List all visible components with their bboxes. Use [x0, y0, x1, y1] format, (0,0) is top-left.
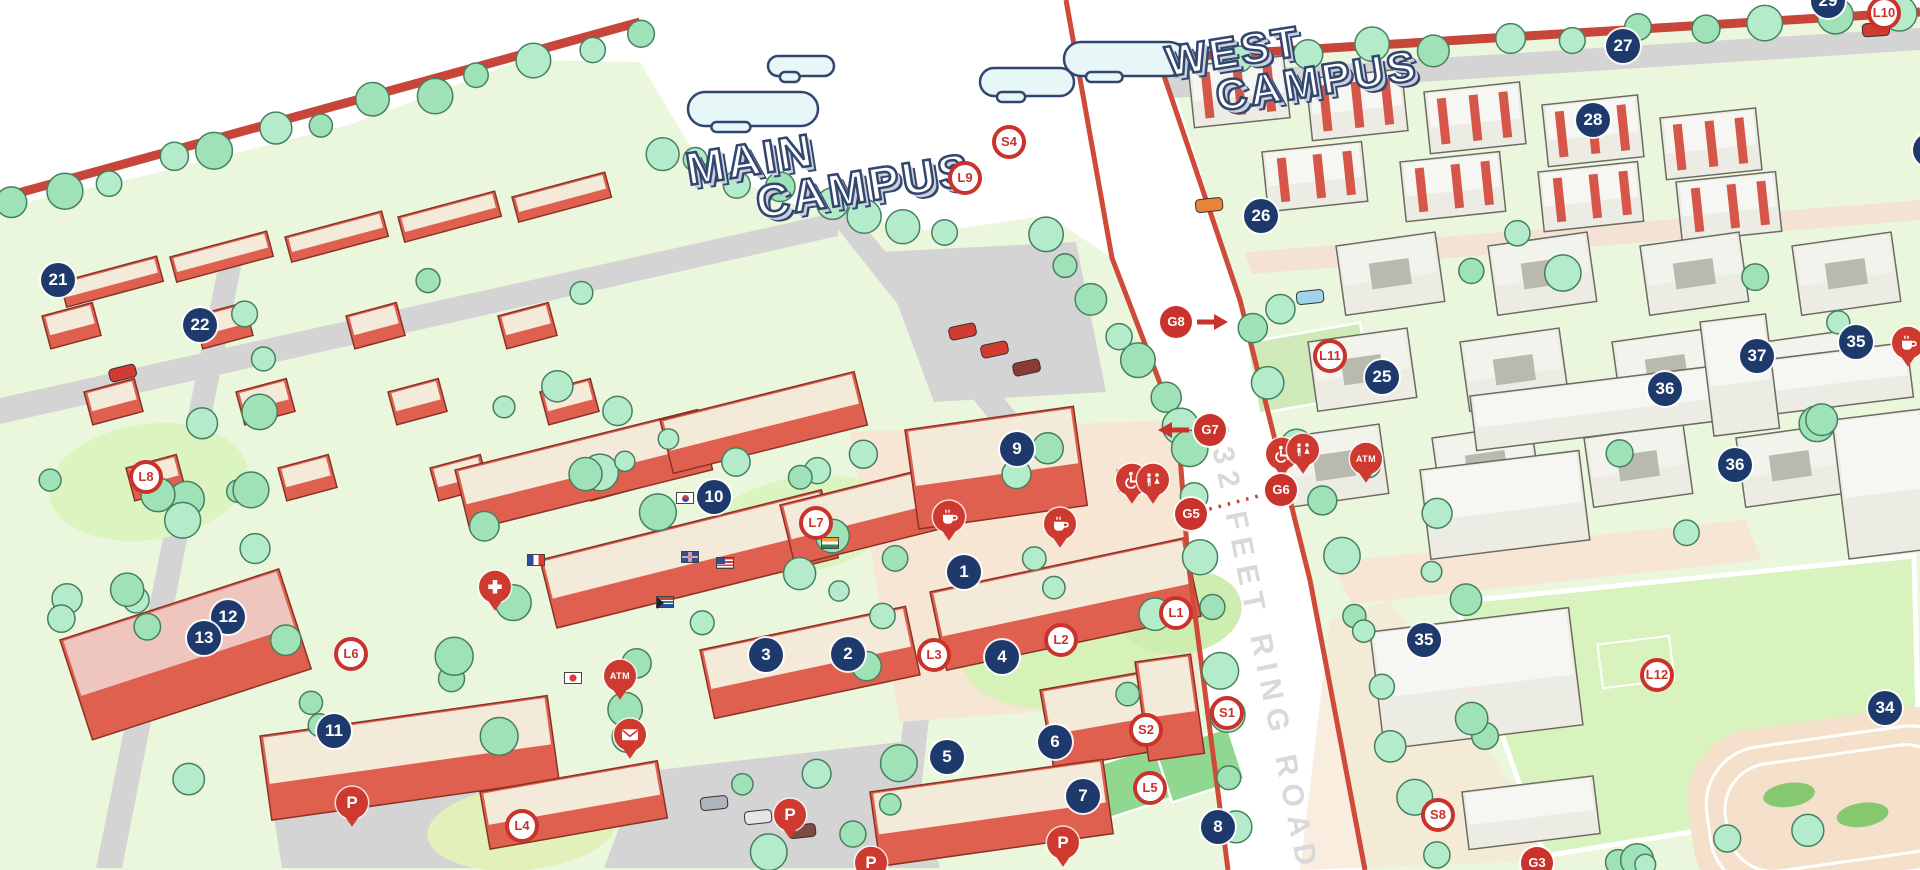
gate-marker-G7: G7 [1194, 414, 1226, 446]
landmark-marker-L2: L2 [1044, 623, 1078, 657]
building-marker-28: 28 [1576, 103, 1610, 137]
building-marker-4: 4 [985, 640, 1019, 674]
landmark-marker-S1: S1 [1210, 696, 1244, 730]
atm-pin-label: ATM [610, 671, 630, 681]
pin-atm: ATM [1350, 443, 1382, 475]
building-marker-27: 27 [1606, 29, 1640, 63]
japan-flag-icon [564, 672, 582, 684]
landmark-marker-L9: L9 [948, 161, 982, 195]
building-marker-37: 37 [1740, 339, 1774, 373]
parking-pin-label: P [865, 853, 876, 870]
landmark-marker-L8: L8 [129, 460, 163, 494]
atm-pin-label: ATM [1356, 454, 1376, 464]
pin-atm: ATM [604, 660, 636, 692]
landmark-marker-L7: L7 [799, 506, 833, 540]
pin-restroom [1137, 464, 1169, 496]
pin-restroom [1287, 434, 1319, 466]
landmark-marker-L12: L12 [1640, 658, 1674, 692]
landmark-marker-L1: L1 [1159, 596, 1193, 630]
coffee-cup-icon [1051, 515, 1069, 533]
landmark-marker-S2: S2 [1129, 713, 1163, 747]
south-africa-flag-icon [656, 596, 674, 608]
pin-coffee [933, 501, 965, 533]
building-marker-2: 2 [1913, 133, 1920, 167]
gate-arrow-left-icon [1156, 421, 1190, 439]
gate-marker-label: G7 [1201, 422, 1218, 437]
gate-marker-label: G6 [1272, 482, 1289, 497]
parking-pin-label: P [784, 805, 795, 825]
building-marker-29: 29 [1811, 0, 1845, 18]
mail-icon [621, 726, 639, 744]
building-marker-11: 11 [317, 714, 351, 748]
pin-parking: P [1047, 827, 1079, 859]
landmark-marker-L6: L6 [334, 637, 368, 671]
building-marker-34: 34 [1868, 691, 1902, 725]
pin-mail [614, 719, 646, 751]
building-marker-5: 5 [930, 740, 964, 774]
building-marker-35: 35 [1839, 325, 1873, 359]
building-marker-22: 22 [183, 308, 217, 342]
building-marker-7: 7 [1066, 779, 1100, 813]
india-flag-icon [821, 537, 839, 549]
building-marker-3: 3 [749, 638, 783, 672]
parking-pin-label: P [346, 793, 357, 813]
gate-marker-G3: G3 [1521, 847, 1553, 870]
gate-marker-G6: G6 [1265, 474, 1297, 506]
landmark-marker-S4: S4 [992, 125, 1026, 159]
gate-marker-label: G3 [1528, 855, 1545, 870]
building-marker-2: 2 [831, 637, 865, 671]
gate-marker-label: G5 [1182, 506, 1199, 521]
building-marker-9: 9 [1000, 432, 1034, 466]
parking-pin-label: P [1057, 833, 1068, 853]
landmark-marker-S8: S8 [1421, 798, 1455, 832]
building-marker-36: 36 [1648, 372, 1682, 406]
building-marker-1: 1 [947, 555, 981, 589]
gate-marker-G5: G5 [1175, 498, 1207, 530]
gate-arrow-right-icon [1196, 313, 1230, 331]
building-marker-35: 35 [1407, 623, 1441, 657]
gate-marker-G8: G8 [1160, 306, 1192, 338]
france-flag-icon [527, 554, 545, 566]
pin-medical [479, 571, 511, 603]
uk-flag-icon [681, 551, 699, 563]
building-marker-6: 6 [1038, 725, 1072, 759]
coffee-cup-icon [940, 508, 958, 526]
landmark-marker-L4: L4 [505, 809, 539, 843]
gate-marker-label: G8 [1167, 314, 1184, 329]
building-marker-10: 10 [697, 480, 731, 514]
pin-parking: P [336, 787, 368, 819]
building-marker-8: 8 [1201, 810, 1235, 844]
pin-coffee [1044, 508, 1076, 540]
pin-parking: P [855, 847, 887, 870]
medical-cross-icon [486, 578, 504, 596]
restroom-icon [1144, 471, 1162, 489]
landmark-marker-L10: L10 [1867, 0, 1901, 30]
usa-flag-icon [716, 557, 734, 569]
campus-map-illustration: MAIN CAMPUS WEST CAMPUS 132 FEET RING RO… [0, 0, 1920, 870]
building-marker-26: 26 [1244, 199, 1278, 233]
korea-flag-icon [676, 492, 694, 504]
pin-coffee [1892, 327, 1920, 359]
building-marker-36: 36 [1718, 448, 1752, 482]
restroom-icon [1294, 441, 1312, 459]
building-marker-13: 13 [187, 621, 221, 655]
landmark-marker-L5: L5 [1133, 771, 1167, 805]
landmark-marker-L11: L11 [1313, 339, 1347, 373]
building-marker-25: 25 [1365, 360, 1399, 394]
pin-parking: P [774, 799, 806, 831]
landmark-marker-L3: L3 [917, 638, 951, 672]
building-marker-21: 21 [41, 263, 75, 297]
coffee-cup-icon [1899, 334, 1917, 352]
